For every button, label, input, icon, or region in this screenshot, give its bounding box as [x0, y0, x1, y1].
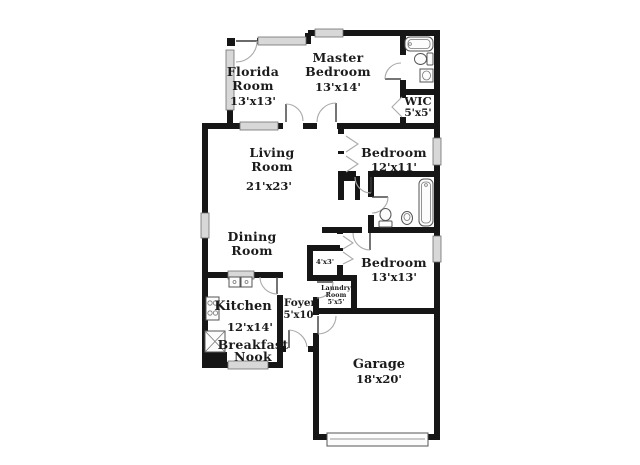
label-garage-dims: 18'x20'	[356, 372, 402, 386]
floor-plan-drawing: Florida Room 13'x13' Master Bedroom 13'x…	[0, 0, 640, 465]
label-kitchen-dims: 12'x14'	[227, 320, 273, 334]
label-bedroom13-dims: 13'x13'	[371, 270, 417, 284]
door-master-bedroom	[317, 103, 336, 122]
label-wic-dims: 5'x5'	[404, 107, 431, 119]
label-bedroom13: Bedroom	[361, 255, 427, 270]
window-bedroom12	[433, 138, 441, 165]
pedestal-sink-icon	[402, 212, 413, 225]
door-kitchen	[260, 277, 277, 294]
label-master-bedroom-2: Bedroom	[305, 64, 371, 79]
door-bedroom12-french	[346, 136, 358, 172]
door-florida-exterior	[236, 41, 257, 62]
label-bedroom12-dims: 12'x11'	[371, 160, 417, 174]
door-bedroom13-closet-bifold	[343, 236, 353, 264]
label-garage: Garage	[353, 357, 405, 372]
door-front-entry	[289, 330, 307, 348]
window-dining	[201, 213, 209, 238]
label-breakfast-nook-2: Nook	[234, 349, 272, 364]
door-garage-side	[318, 316, 336, 334]
label-master-dims: 13'x14'	[315, 80, 361, 94]
window-bedroom13	[433, 236, 441, 262]
label-kitchen: Kitchen	[214, 299, 272, 314]
toilet-icon	[415, 53, 434, 65]
label-foyer-dims: 5'x10'	[284, 310, 317, 321]
label-living-dims: 21'x23'	[246, 179, 292, 193]
bathtub-icon	[419, 179, 433, 226]
label-living-room: Living	[249, 145, 294, 160]
label-laundry-room-2: Room	[326, 292, 347, 299]
label-florida-room: Florida	[227, 64, 279, 79]
door-wic-bifold	[392, 97, 402, 117]
door-bedroom13	[353, 233, 370, 250]
window-master	[315, 29, 343, 37]
garage-overhead-door	[327, 433, 428, 446]
label-master-bedroom: Master	[312, 50, 363, 65]
bathtub-icon	[405, 37, 433, 51]
label-laundry-dims: 5'x5'	[328, 299, 345, 306]
toilet-icon	[379, 209, 392, 228]
label-dining-room: Dining	[227, 229, 276, 244]
label-dining-room-2: Room	[231, 243, 273, 258]
label-florida-dims: 13'x13'	[230, 94, 276, 108]
label-florida-room-2: Room	[232, 78, 274, 93]
label-living-room-2: Room	[251, 159, 293, 174]
floor-plan: Florida Room 13'x13' Master Bedroom 13'x…	[0, 0, 640, 465]
door-florida-living	[286, 104, 303, 122]
label-laundry-room: Laundry	[321, 285, 351, 292]
label-bedroom12: Bedroom	[361, 145, 427, 160]
label-closet-4x3: 4'x3'	[316, 258, 334, 266]
sink-icon	[420, 69, 433, 82]
kitchen-sink-icon	[229, 277, 252, 287]
window-florida-bottom	[240, 122, 278, 130]
door-master-bath	[385, 63, 401, 79]
label-foyer: Foyer	[284, 297, 317, 309]
label-wic: WIC	[403, 94, 431, 108]
window-florida-top	[258, 37, 306, 45]
